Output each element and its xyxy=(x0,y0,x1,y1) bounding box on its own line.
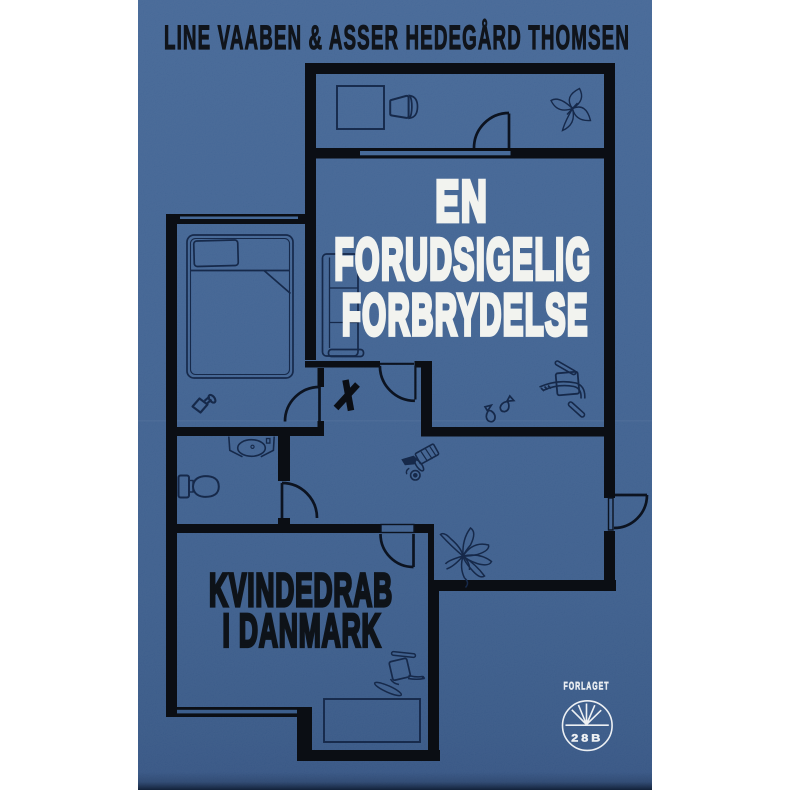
svg-text:28B: 28B xyxy=(571,733,603,745)
svg-text:EN: EN xyxy=(436,169,489,234)
svg-text:LINE VAABEN & ASSER HEDEGÅRD T: LINE VAABEN & ASSER HEDEGÅRD THOMSEN xyxy=(164,19,630,57)
svg-text:I DANMARK: I DANMARK xyxy=(223,604,382,657)
svg-text:FORBRYDELSE: FORBRYDELSE xyxy=(342,283,589,348)
svg-text:FORLAGET: FORLAGET xyxy=(564,681,610,693)
